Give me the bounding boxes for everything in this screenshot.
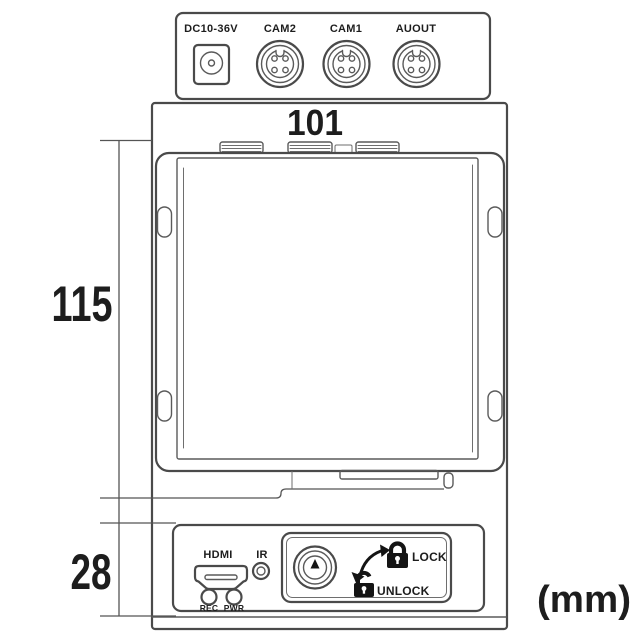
cam2-connector-icon [257, 41, 303, 87]
key-lock-panel: LOCK UNLOCK [282, 533, 451, 602]
cam1-connector-icon [324, 41, 370, 87]
cam1-label: CAM1 [330, 23, 362, 35]
latch-hook [444, 473, 453, 488]
drawing-canvas: DC10-36V CAM2 CAM1 [0, 0, 640, 640]
auout-label: AUOUT [396, 23, 437, 35]
unlock-label: UNLOCK [377, 584, 430, 598]
lock-closed-icon [387, 544, 408, 569]
front-bezel-panel: HDMI REC PWR IR [173, 525, 484, 613]
hdmi-label: HDMI [203, 549, 232, 561]
dc-power-jack-icon [194, 45, 229, 84]
auout-connector-icon [394, 41, 440, 87]
ir-receiver-icon [253, 563, 269, 579]
mounting-plate-outline [156, 153, 504, 471]
pwr-led-label: PWR [224, 603, 244, 613]
connector-bumps [220, 142, 399, 153]
mounting-slot-bottom-right [488, 391, 502, 421]
key-cylinder-icon [294, 547, 336, 589]
top-view-panel: DC10-36V CAM2 CAM1 [176, 13, 490, 99]
mounting-slot-top-right [488, 207, 502, 237]
mounting-slot-bottom-left [158, 391, 172, 421]
hdmi-port-icon [195, 566, 247, 589]
dc-input-label: DC10-36V [184, 23, 238, 35]
ir-label: IR [256, 549, 268, 561]
lock-label: LOCK [412, 550, 447, 564]
cam2-label: CAM2 [264, 23, 296, 35]
height-dimension-value: 115 [52, 276, 113, 332]
front-height-dimension-value: 28 [71, 544, 112, 600]
dimension-height-28: 28 [71, 523, 177, 616]
mounting-slot-top-left [158, 207, 172, 237]
unit-label: (mm) [537, 579, 631, 621]
dimensional-drawing: DC10-36V CAM2 CAM1 [0, 0, 640, 640]
cover-door-outline [177, 158, 478, 459]
rec-led-label: REC [200, 603, 219, 613]
width-dimension-value: 101 [287, 102, 343, 143]
